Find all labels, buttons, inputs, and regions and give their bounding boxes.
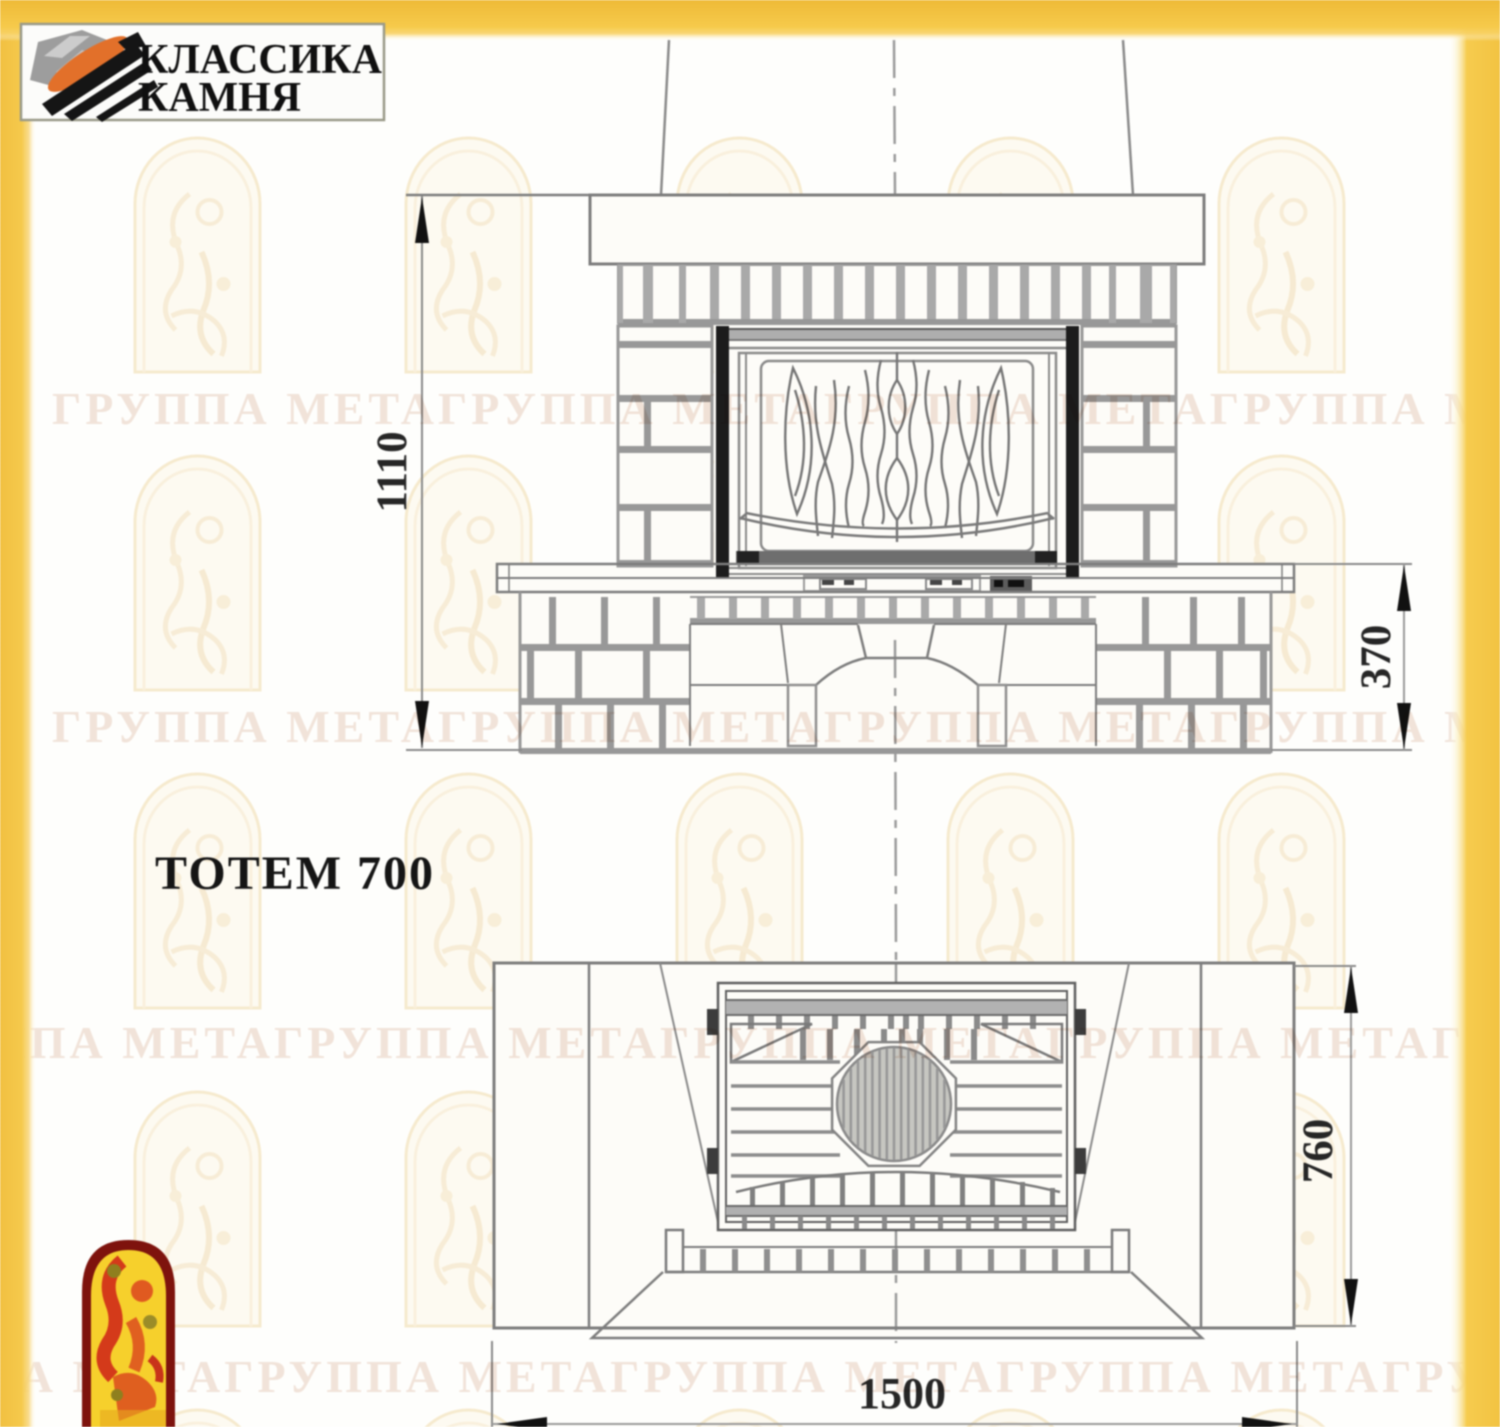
svg-text:КАМНЯ: КАМНЯ [138,75,301,121]
svg-text:ПА МЕТАГРУППА МЕТАГРУППА МЕТАГ: ПА МЕТАГРУППА МЕТАГРУППА МЕТАГРУППА МЕТА… [0,1351,1500,1402]
svg-text:760: 760 [1295,1119,1342,1184]
svg-text:1110: 1110 [369,431,416,512]
svg-text:ППА МЕТАГРУППА МЕТАГРУППА МЕТА: ППА МЕТАГРУППА МЕТАГРУППА МЕТАГРУППА МЕТ… [0,1017,1500,1068]
svg-text:ТОТЕМ 700: ТОТЕМ 700 [155,847,435,900]
svg-text:ГРУППА МЕТАГРУППА МЕТАГРУППА М: ГРУППА МЕТАГРУППА МЕТАГРУППА МЕТАГРУППА … [52,701,1500,752]
svg-text:ГРУППА МЕТАГРУППА МЕТАГРУППА М: ГРУППА МЕТАГРУППА МЕТАГРУППА МЕТАГРУППА … [52,383,1500,434]
svg-text:370: 370 [1353,625,1400,690]
